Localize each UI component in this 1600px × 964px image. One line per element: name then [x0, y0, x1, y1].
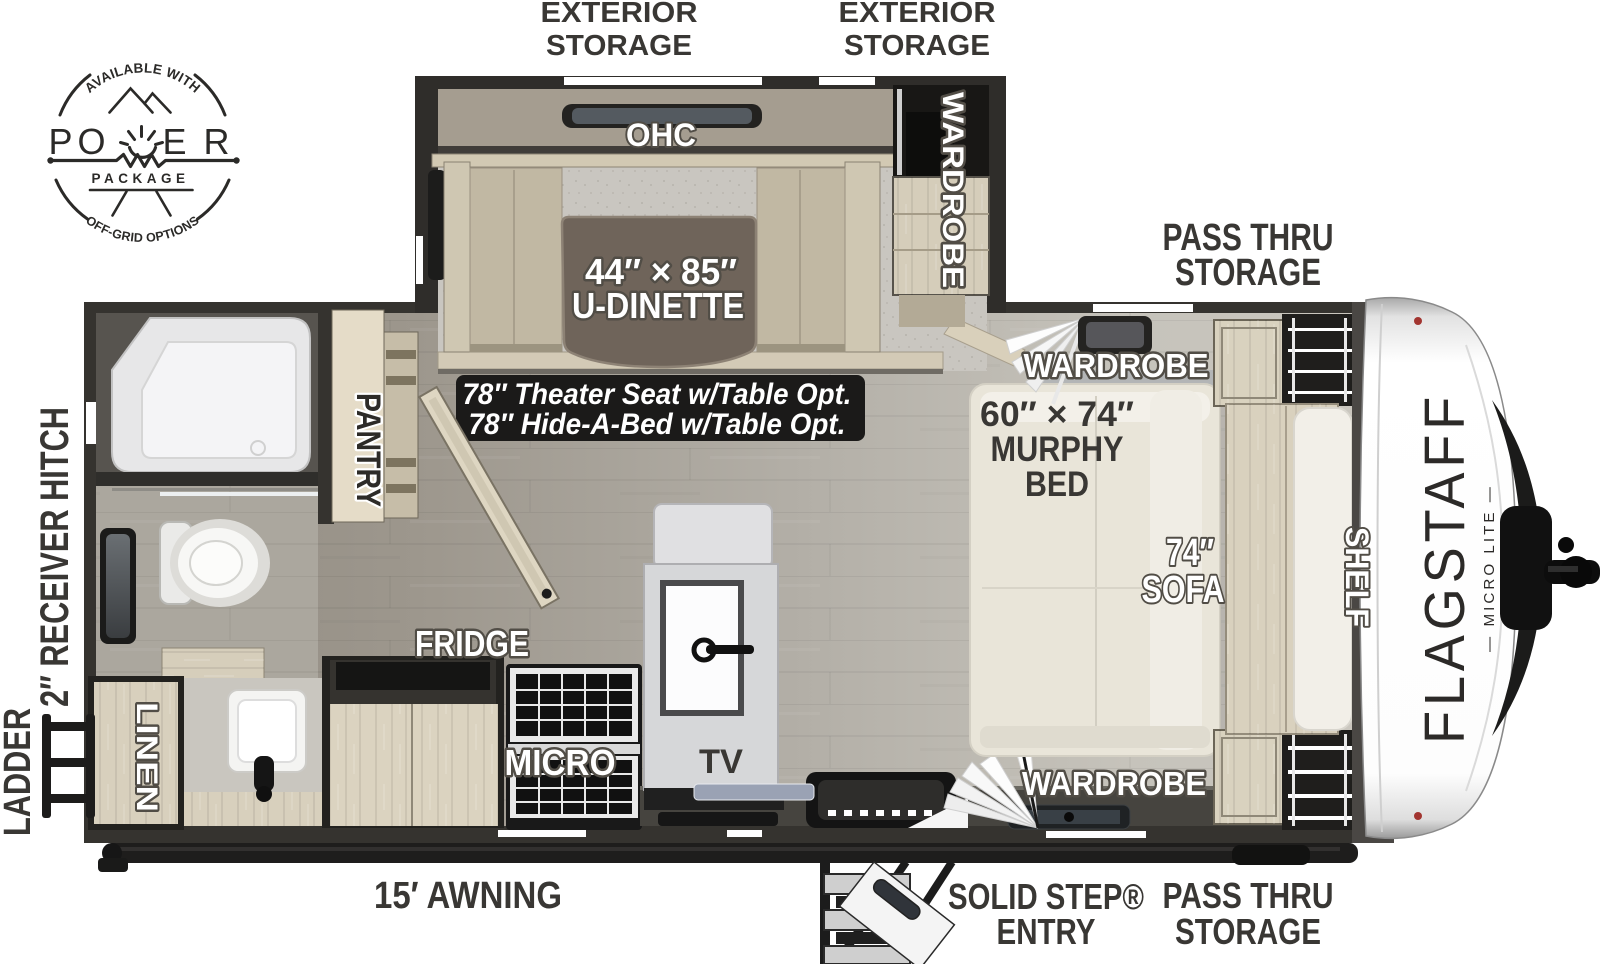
svg-text:EXTERIOR: EXTERIOR — [839, 0, 996, 29]
svg-text:BED: BED — [1025, 465, 1089, 504]
svg-text:EXTERIOR: EXTERIOR — [541, 0, 698, 29]
svg-text:LINEN: LINEN — [130, 702, 163, 812]
svg-text:O: O — [77, 121, 105, 162]
svg-text:SOFA: SOFA — [1142, 569, 1225, 611]
svg-text:FLAGSTAFF: FLAGSTAFF — [1413, 392, 1477, 744]
svg-text:STORAGE: STORAGE — [1175, 252, 1321, 294]
svg-text:E: E — [162, 121, 186, 162]
svg-text:PANTRY: PANTRY — [349, 393, 387, 507]
svg-text:U-DINETTE: U-DINETTE — [572, 285, 744, 326]
svg-text:WARDROBE: WARDROBE — [1024, 347, 1209, 384]
svg-text:MICRO: MICRO — [505, 742, 616, 783]
svg-text:LADDER: LADDER — [0, 708, 39, 836]
svg-text:PASS THRU: PASS THRU — [1163, 875, 1334, 916]
svg-text:ENTRY: ENTRY — [997, 911, 1096, 952]
svg-text:78″ Hide-A-Bed w/Table Opt.: 78″ Hide-A-Bed w/Table Opt. — [469, 408, 846, 441]
svg-text:R: R — [204, 121, 230, 162]
svg-text:2″ RECEIVER HITCH: 2″ RECEIVER HITCH — [33, 407, 77, 707]
svg-text:STORAGE: STORAGE — [546, 30, 692, 62]
svg-text:P: P — [48, 121, 72, 162]
svg-text:— MICRO LITE —: — MICRO LITE — — [1481, 484, 1498, 652]
svg-text:15′ AWNING: 15′ AWNING — [374, 875, 562, 917]
svg-text:WARDROBE: WARDROBE — [1022, 765, 1206, 802]
svg-text:FRIDGE: FRIDGE — [415, 623, 529, 664]
svg-text:STORAGE: STORAGE — [844, 30, 990, 62]
svg-text:STORAGE: STORAGE — [1175, 911, 1321, 952]
svg-text:WARDROBE: WARDROBE — [936, 92, 969, 288]
svg-text:OHC: OHC — [626, 117, 696, 153]
svg-text:SHELF: SHELF — [1339, 527, 1375, 627]
svg-text:PACKAGE: PACKAGE — [91, 171, 189, 186]
svg-text:74″: 74″ — [1166, 532, 1214, 574]
svg-text:60″ × 74″: 60″ × 74″ — [980, 395, 1134, 434]
svg-text:MURPHY: MURPHY — [991, 430, 1124, 469]
svg-text:TV: TV — [699, 743, 743, 781]
svg-text:78″ Theater Seat w/Table Opt.: 78″ Theater Seat w/Table Opt. — [463, 378, 852, 411]
